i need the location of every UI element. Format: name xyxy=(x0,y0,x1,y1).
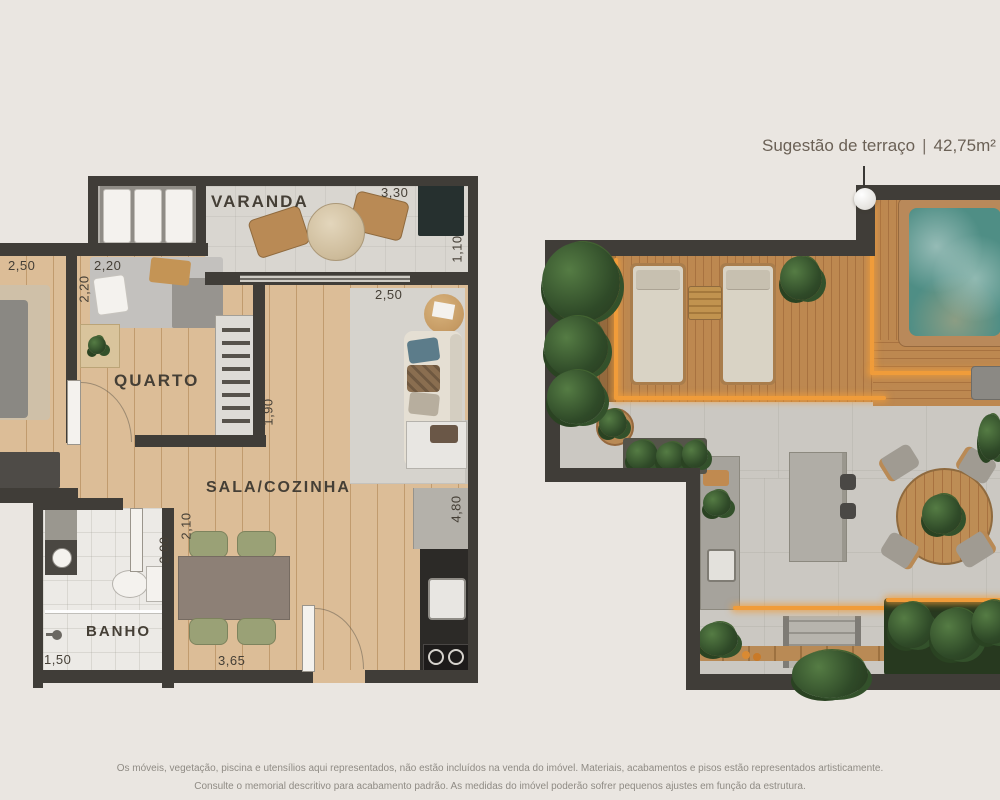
stove-burner xyxy=(428,649,444,665)
dining-table xyxy=(178,556,290,620)
entry-opening xyxy=(313,670,365,683)
washing-machine xyxy=(103,189,131,243)
wall xyxy=(33,498,123,510)
grill-unit xyxy=(971,366,1000,400)
desk-plant xyxy=(88,336,106,354)
room-label-banho: BANHO xyxy=(86,623,151,640)
planter-shrub xyxy=(888,602,934,648)
sofa-pillow-blue xyxy=(407,337,441,364)
spill-plant xyxy=(792,650,868,698)
measurement: 1,50 xyxy=(44,652,71,667)
washing-machine xyxy=(165,189,193,243)
kitchen-sink xyxy=(428,578,466,620)
shower-glass xyxy=(45,610,162,614)
terrace-title-separator: | xyxy=(922,136,926,155)
wall xyxy=(35,670,478,683)
sofa-pillow-beige xyxy=(408,391,440,416)
measurement: 3,30 xyxy=(381,185,408,200)
dining-chair xyxy=(237,618,276,645)
wall xyxy=(468,176,478,682)
wall-plant xyxy=(547,370,605,424)
floor-plan-sheet: VARANDA QUARTO SALA/COZINHA BANHO 2,50 2… xyxy=(0,0,1000,800)
measurement: 2,50 xyxy=(375,287,402,302)
shower-arm xyxy=(46,633,58,636)
bath-sink xyxy=(52,548,72,568)
bench-plant xyxy=(698,622,738,656)
measurement: 2,50 xyxy=(8,258,35,273)
wall xyxy=(0,243,208,256)
terrace-area-value: 42,75m² xyxy=(934,136,996,155)
dining-chair xyxy=(189,618,228,645)
disclaimer-line-2: Consulte o memorial descritivo para acab… xyxy=(0,778,1000,796)
toilet-bowl xyxy=(112,570,148,598)
wall xyxy=(686,468,700,690)
wall-plant xyxy=(542,242,620,322)
toilet-tank xyxy=(146,566,163,602)
bed-throw xyxy=(149,257,191,286)
jacuzzi xyxy=(898,197,1000,347)
wall xyxy=(162,508,174,688)
fruit-bowl xyxy=(742,651,750,659)
measurement: 2,20 xyxy=(94,258,121,273)
edge-plant xyxy=(978,414,1000,460)
dining-chair xyxy=(189,531,228,558)
bath-vanity-top xyxy=(45,510,77,540)
disclaimer-line-1: Os móveis, vegetação, piscina e utensíli… xyxy=(0,760,1000,778)
deck-led-strip xyxy=(616,396,886,400)
potted-plant xyxy=(780,256,822,300)
terrace-title: Sugestão de terraço|42,75m² xyxy=(762,136,996,156)
banho-door xyxy=(130,508,143,572)
terrace-title-text: Sugestão de terraço xyxy=(762,136,915,155)
cutting-board xyxy=(703,470,729,486)
room-label-sala-cozinha: SALA/COZINHA xyxy=(206,479,351,497)
counter-plant xyxy=(703,490,731,516)
wall xyxy=(88,176,98,253)
bar-stool xyxy=(840,503,856,519)
trough-plant xyxy=(682,440,708,468)
wardrobe-hangers xyxy=(222,322,250,432)
trough-plant xyxy=(626,440,658,470)
kitchen-island xyxy=(789,452,847,562)
varanda-table xyxy=(307,203,365,261)
sofa-pillow-pattern xyxy=(407,365,440,392)
adjacent-room-bed xyxy=(0,300,28,418)
wall xyxy=(856,185,1000,200)
wall-plant xyxy=(544,316,608,378)
sun-lounger xyxy=(720,263,776,385)
room-label-quarto: QUARTO xyxy=(114,371,199,391)
dining-chair xyxy=(237,531,276,558)
pendant-light-cord xyxy=(863,166,865,190)
fridge-items xyxy=(430,425,458,443)
deck-side-table xyxy=(688,286,722,320)
quarto-door xyxy=(67,380,81,445)
adjacent-room-console xyxy=(0,452,60,488)
stove-burner xyxy=(448,649,464,665)
table-centerpiece-plant xyxy=(922,494,962,534)
washing-machine xyxy=(134,189,162,243)
wall xyxy=(135,435,266,447)
outside-mask xyxy=(0,503,33,688)
jacuzzi-water xyxy=(909,208,1000,336)
outdoor-sink xyxy=(707,549,736,582)
lounger-pillow xyxy=(636,270,680,290)
disclaimer: Os móveis, vegetação, piscina e utensíli… xyxy=(0,760,1000,796)
measurement: 3,65 xyxy=(218,653,245,668)
bar-stool xyxy=(840,474,856,490)
wall xyxy=(196,176,206,253)
basket-plant xyxy=(599,409,627,437)
entry-door xyxy=(302,605,315,672)
wall xyxy=(545,468,700,482)
bed-pillow xyxy=(93,274,130,316)
room-label-varanda: VARANDA xyxy=(211,192,309,212)
wall xyxy=(88,176,478,186)
lounger-pillow xyxy=(726,270,770,290)
pendant-light xyxy=(854,188,876,210)
sliding-door xyxy=(240,275,410,282)
sun-lounger xyxy=(630,263,686,385)
wall xyxy=(33,498,43,688)
ac-unit xyxy=(418,184,464,236)
